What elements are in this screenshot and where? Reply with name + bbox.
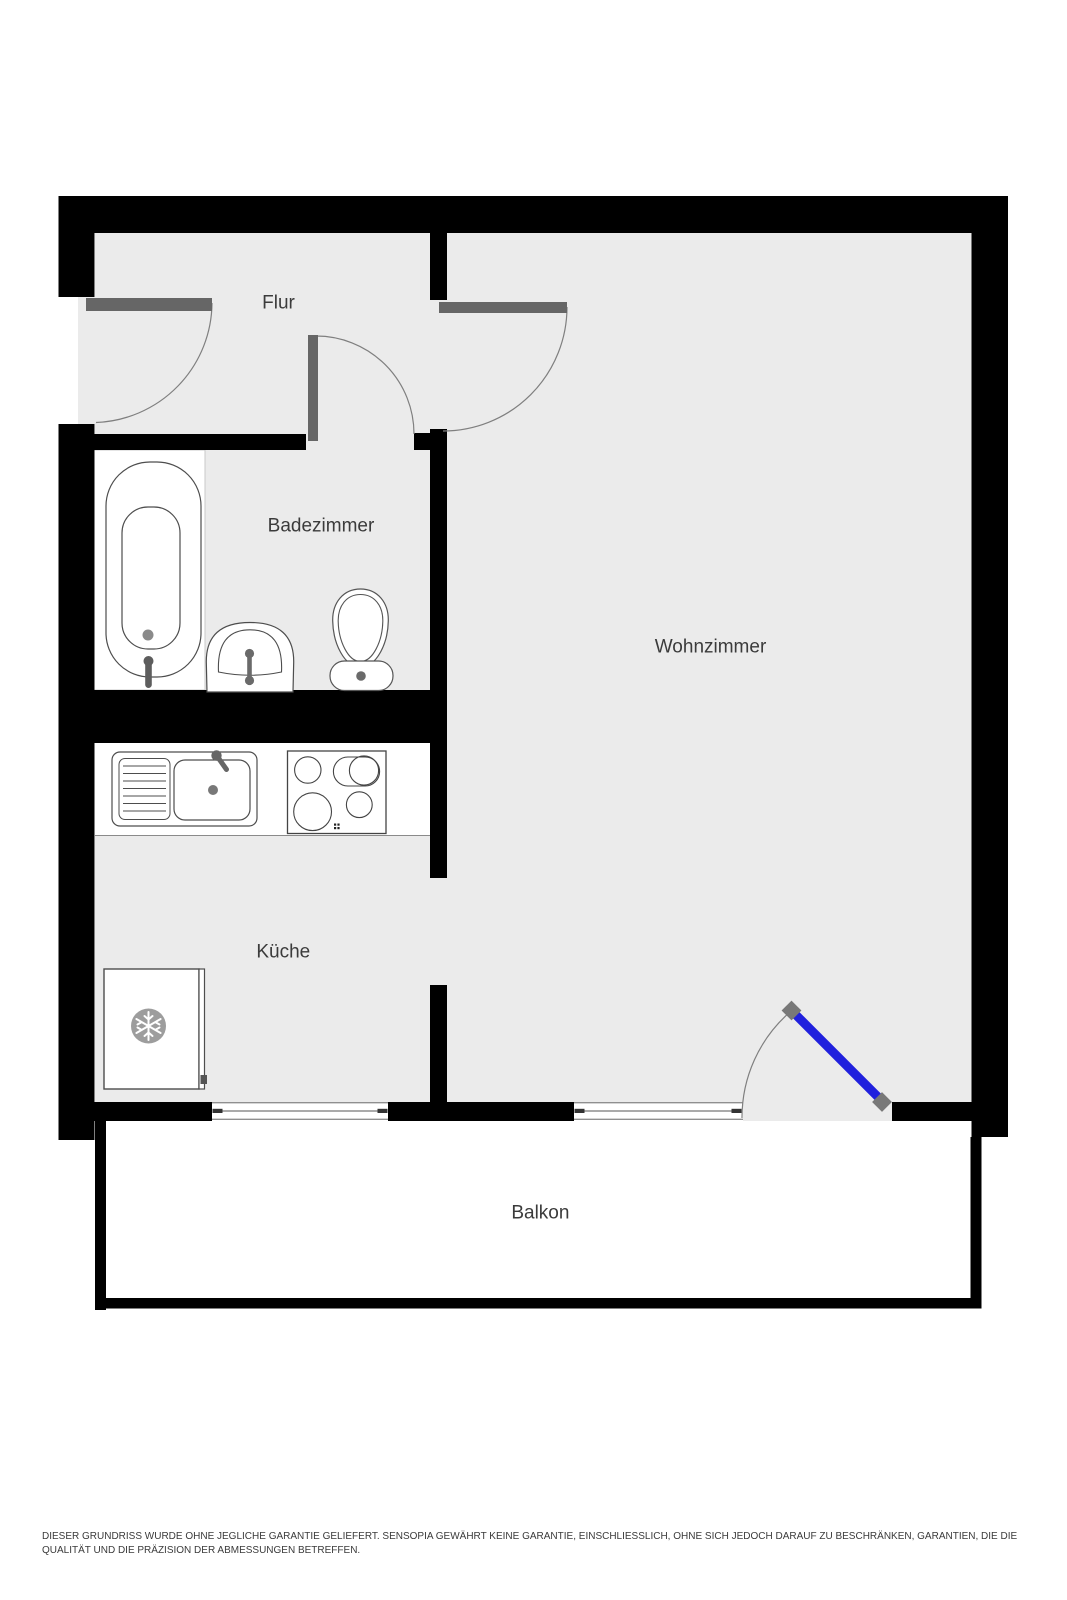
- svg-text:Wohnzimmer: Wohnzimmer: [655, 637, 767, 658]
- svg-text:Badezimmer: Badezimmer: [268, 515, 375, 536]
- svg-text:Küche: Küche: [256, 942, 310, 963]
- svg-text:Flur: Flur: [262, 293, 295, 314]
- svg-text:QUALITÄT UND DIE PRÄZISION DER: QUALITÄT UND DIE PRÄZISION DER ABMESSUNG…: [42, 1544, 360, 1556]
- svg-text:Balkon: Balkon: [511, 1203, 569, 1224]
- svg-text:DIESER GRUNDRISS WURDE OHNE JE: DIESER GRUNDRISS WURDE OHNE JEGLICHE GAR…: [42, 1530, 1018, 1542]
